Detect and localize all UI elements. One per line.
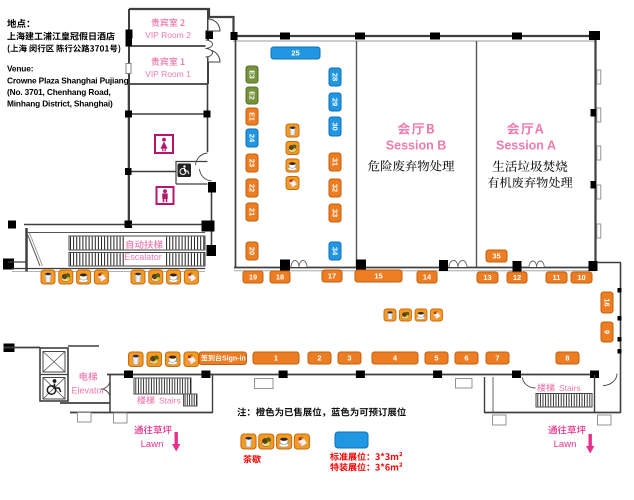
svg-text:Escalator: Escalator	[124, 252, 162, 262]
svg-text:Stairs: Stairs	[559, 383, 581, 393]
svg-text:16: 16	[602, 298, 611, 306]
svg-text:(No. 3701, Chenhang Road,: (No. 3701, Chenhang Road,	[7, 87, 111, 97]
svg-text:Venue:: Venue:	[7, 64, 33, 74]
svg-text:2: 2	[317, 354, 321, 363]
svg-text:7: 7	[495, 354, 499, 363]
svg-text:3: 3	[347, 354, 351, 363]
svg-text:32: 32	[330, 184, 339, 192]
svg-text:Elevator: Elevator	[71, 386, 104, 396]
svg-text:34: 34	[330, 247, 339, 256]
svg-text:E1: E1	[247, 112, 254, 121]
svg-text:12: 12	[513, 273, 521, 282]
svg-text:20: 20	[247, 247, 256, 255]
svg-text:31: 31	[330, 158, 339, 166]
svg-text:13: 13	[483, 273, 491, 282]
svg-text:Stairs: Stairs	[159, 396, 181, 406]
svg-text:21: 21	[247, 208, 256, 216]
svg-text:29: 29	[330, 98, 339, 106]
svg-text:30: 30	[330, 122, 339, 130]
svg-text:Session B: Session B	[386, 139, 446, 153]
svg-text:VIP Room 2: VIP Room 2	[145, 30, 191, 40]
svg-text:19: 19	[249, 273, 257, 282]
svg-text:Session A: Session A	[496, 139, 556, 153]
svg-text:18: 18	[276, 273, 284, 282]
svg-text:24: 24	[247, 134, 256, 143]
svg-text:Minhang District, Shanghai): Minhang District, Shanghai)	[7, 99, 113, 109]
svg-text:17: 17	[328, 272, 336, 281]
svg-text:10: 10	[577, 273, 585, 282]
svg-text:15: 15	[374, 272, 382, 281]
svg-text:E2: E2	[247, 91, 254, 100]
svg-text:11: 11	[553, 273, 561, 282]
svg-text:Lawn: Lawn	[141, 439, 164, 450]
svg-text:VIP Room 1: VIP Room 1	[145, 69, 191, 79]
svg-text:E3: E3	[247, 70, 254, 79]
svg-text:Crowne Plaza Shanghai Pujiang: Crowne Plaza Shanghai Pujiang	[7, 76, 129, 86]
svg-text:33: 33	[330, 209, 339, 217]
svg-text:9: 9	[602, 330, 611, 334]
svg-text:5: 5	[434, 354, 438, 363]
svg-text:Sign-in: Sign-in	[222, 356, 246, 363]
svg-text:28: 28	[330, 73, 339, 81]
svg-text:23: 23	[247, 159, 256, 167]
svg-text:14: 14	[423, 273, 432, 282]
svg-text:1: 1	[274, 354, 278, 363]
svg-text:Lawn: Lawn	[554, 439, 577, 450]
svg-text:22: 22	[247, 184, 256, 192]
svg-text:35: 35	[492, 252, 500, 261]
svg-text:8: 8	[565, 354, 569, 363]
svg-text:25: 25	[291, 49, 299, 58]
svg-text:6: 6	[464, 354, 468, 363]
